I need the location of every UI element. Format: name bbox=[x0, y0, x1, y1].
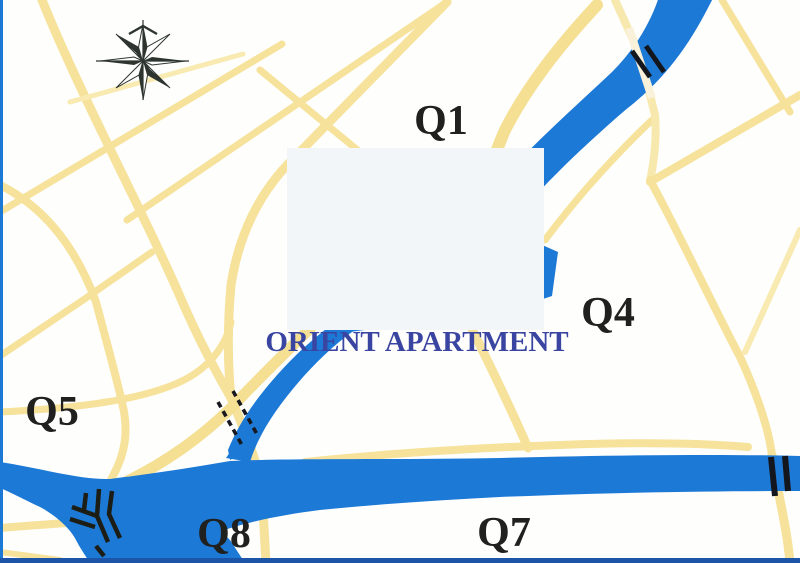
svg-text:Q7: Q7 bbox=[477, 510, 531, 556]
svg-text:Q8: Q8 bbox=[197, 511, 251, 557]
svg-text:Q4: Q4 bbox=[581, 290, 635, 336]
svg-text:Q5: Q5 bbox=[25, 389, 79, 435]
svg-text:Q1: Q1 bbox=[414, 98, 468, 144]
svg-text:ORIENT APARTMENT: ORIENT APARTMENT bbox=[265, 326, 568, 358]
